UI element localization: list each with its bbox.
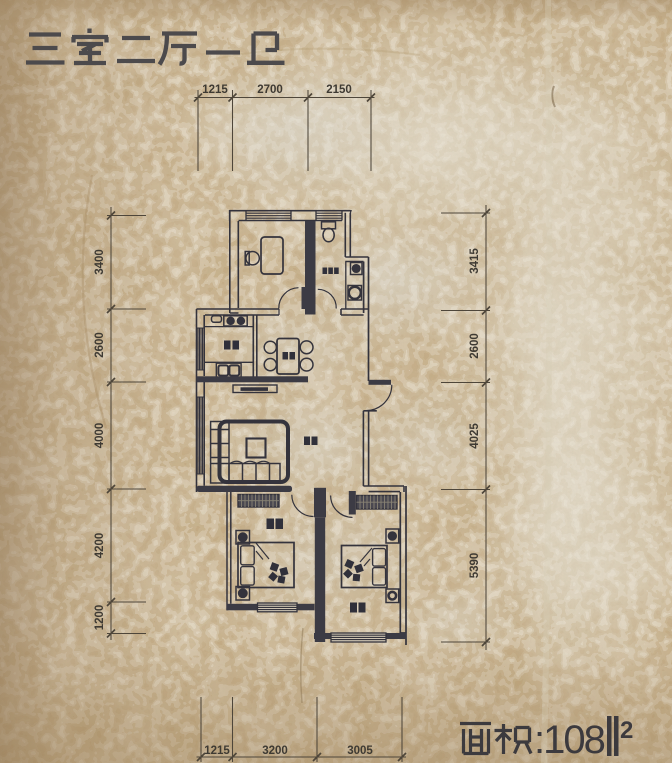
svg-text:4025: 4025 xyxy=(469,423,481,449)
svg-text::108: :108 xyxy=(534,718,605,762)
svg-text:3200: 3200 xyxy=(262,745,288,757)
svg-text:4000: 4000 xyxy=(94,423,106,449)
svg-text:2150: 2150 xyxy=(326,84,352,96)
svg-text:5390: 5390 xyxy=(469,553,481,579)
svg-text:2600: 2600 xyxy=(469,333,481,359)
svg-text:1200: 1200 xyxy=(94,605,106,631)
svg-text:1215: 1215 xyxy=(202,84,228,96)
svg-text:1215: 1215 xyxy=(204,745,230,757)
svg-text:3415: 3415 xyxy=(469,248,481,274)
svg-text:2: 2 xyxy=(620,717,633,744)
svg-text:3400: 3400 xyxy=(94,249,106,275)
svg-text:3005: 3005 xyxy=(347,745,373,757)
svg-text:2600: 2600 xyxy=(94,332,106,358)
svg-text:4200: 4200 xyxy=(94,533,106,559)
svg-text:2700: 2700 xyxy=(257,84,283,96)
